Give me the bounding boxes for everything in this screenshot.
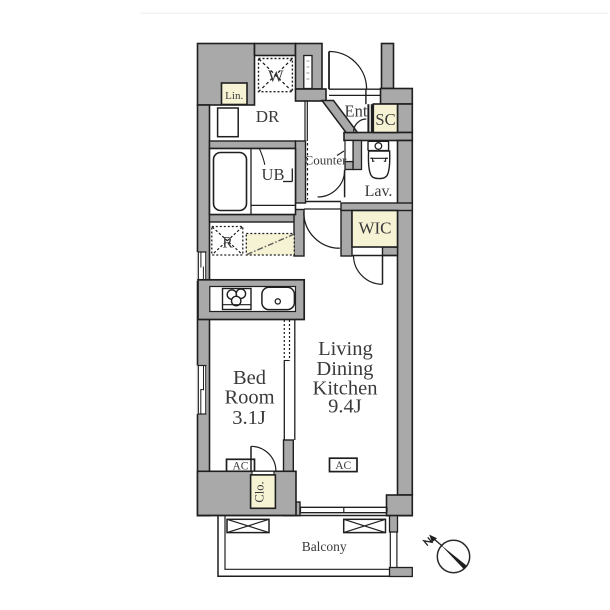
svg-text:W: W <box>268 67 284 86</box>
svg-text:Lav.: Lav. <box>365 183 393 200</box>
svg-text:Lin.: Lin. <box>225 90 243 102</box>
svg-text:AC: AC <box>335 460 351 472</box>
svg-text:WIC: WIC <box>358 219 391 238</box>
svg-text:DR: DR <box>256 107 280 126</box>
svg-text:Room: Room <box>224 387 274 409</box>
svg-text:Dining: Dining <box>316 358 373 380</box>
svg-text:SC: SC <box>375 110 395 129</box>
svg-text:Counter: Counter <box>305 153 348 168</box>
svg-text:9.4J: 9.4J <box>328 396 362 418</box>
svg-text:UB: UB <box>262 165 285 184</box>
svg-text:R: R <box>222 235 233 252</box>
svg-text:Ent: Ent <box>345 102 368 121</box>
svg-text:Clo.: Clo. <box>253 481 267 502</box>
svg-text:Balcony: Balcony <box>302 539 347 554</box>
svg-text:Living: Living <box>318 338 373 360</box>
svg-text:3.1J: 3.1J <box>232 407 266 429</box>
